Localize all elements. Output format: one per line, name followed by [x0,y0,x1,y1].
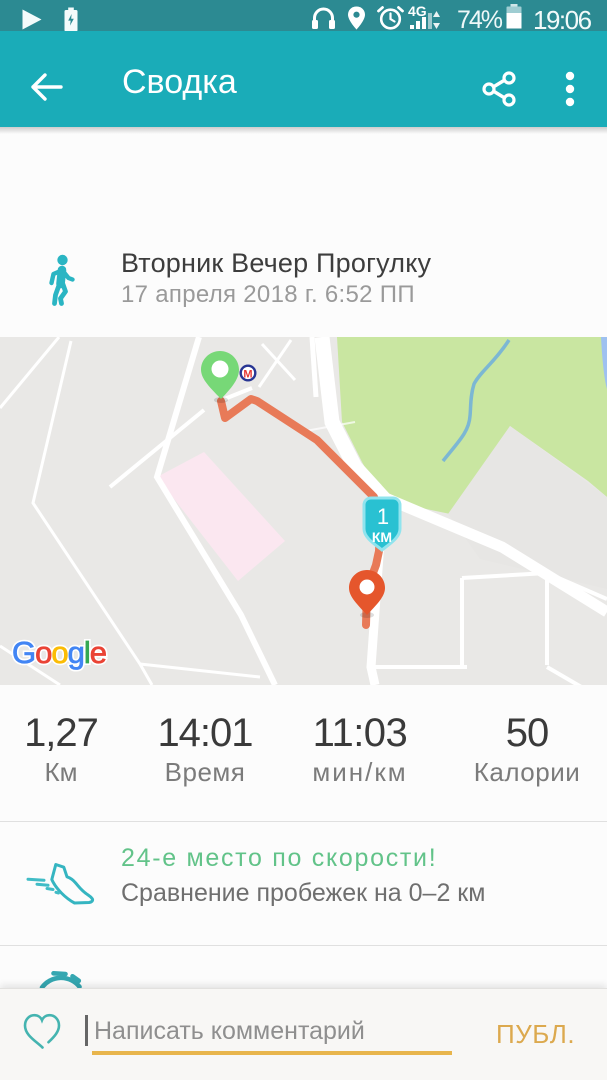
svg-text:1: 1 [377,504,389,529]
svg-text:КМ: КМ [372,529,392,545]
svg-text:M: M [243,369,252,381]
svg-text:Google: Google [12,635,106,670]
